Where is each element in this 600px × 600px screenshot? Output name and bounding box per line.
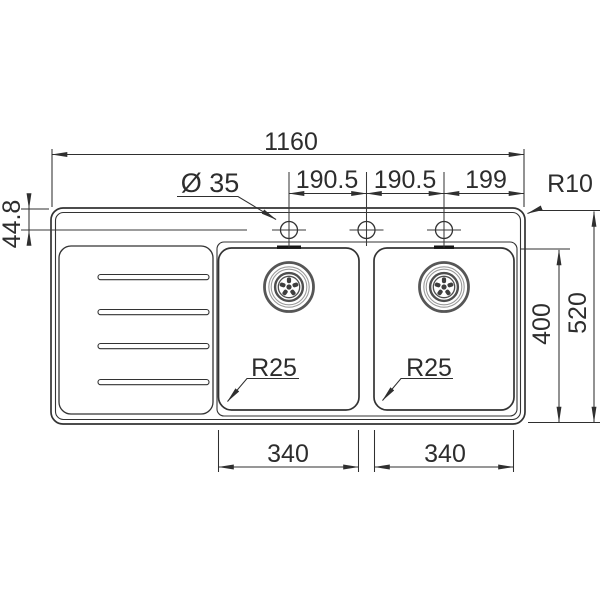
dim-label-bowl-width-left: 340 [267, 440, 309, 468]
sink-outer-outline [51, 208, 525, 424]
bowl-radius-left-text: R25 [251, 354, 297, 382]
dim-rim-to-holes: 44.8 [0, 196, 49, 248]
bowls-surround-outline [217, 242, 517, 416]
drainboard-grooves [98, 275, 209, 385]
drainboard-groove [98, 310, 209, 315]
dim-label-overall-depth: 520 [564, 292, 592, 334]
drain-left [265, 263, 314, 312]
dim-bowl-width-left: 340 [219, 430, 359, 472]
bowl-radius-right-text: R25 [406, 354, 452, 382]
sink-inner-outline [56, 213, 521, 420]
dim-hole-spacing: 190.5 190.5 199 [289, 166, 524, 194]
label-hole-diameter: Ø 35 [177, 168, 276, 220]
label-bowl-radius-left: R25 [228, 354, 300, 402]
dim-label-hole-edge-offset: 199 [465, 166, 507, 194]
dim-overall-width: 1160 [52, 128, 524, 207]
dim-label-rim-to-holes: 44.8 [0, 200, 26, 249]
dim-label-bowl-width-right: 340 [424, 440, 466, 468]
corner-radius-leader [528, 211, 600, 214]
drainboard-groove [98, 380, 209, 385]
technical-drawing: 1160 190.5 190.5 199 Ø 35 44.8 R10 520 4… [0, 0, 600, 600]
corner-radius-text: R10 [547, 170, 593, 198]
drainboard-groove [98, 344, 209, 349]
drainboard-groove [98, 275, 209, 280]
drainboard-outline [59, 246, 213, 414]
dim-bowl-width-right: 340 [375, 430, 514, 472]
label-corner-radius: R10 [528, 170, 600, 214]
sink-plan [21, 172, 525, 424]
dim-label-overall-width: 1160 [264, 128, 318, 156]
drain-right [420, 263, 469, 312]
sink-drawing-canvas: 1160 190.5 190.5 199 Ø 35 44.8 R10 520 4… [0, 0, 600, 600]
dim-label-hole-spacing-left: 190.5 [296, 166, 359, 194]
dim-label-bowl-depth: 400 [528, 303, 556, 345]
hole-diameter-text: Ø 35 [181, 168, 240, 198]
label-bowl-radius-right: R25 [383, 354, 454, 401]
dim-bowl-depth: 400 [520, 249, 570, 422]
dim-label-hole-spacing-right: 190.5 [374, 166, 437, 194]
